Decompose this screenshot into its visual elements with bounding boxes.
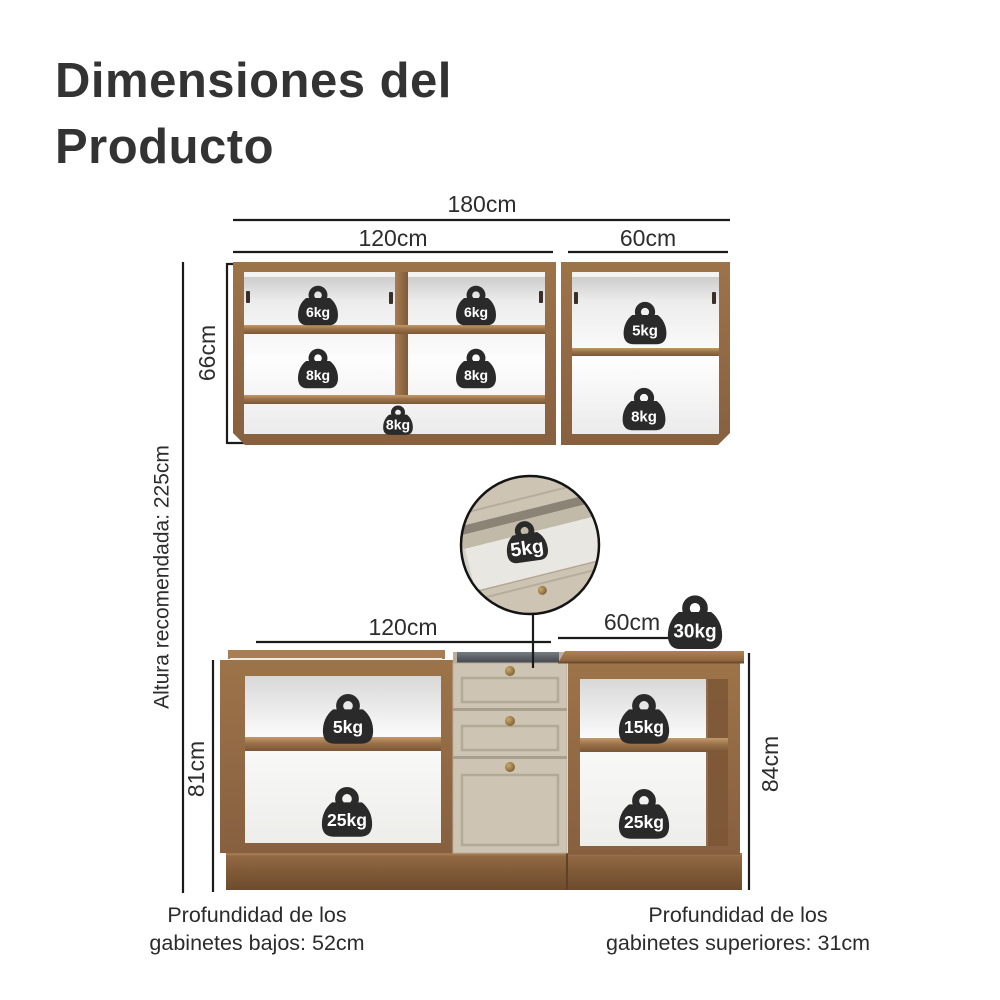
drawer-1-knob bbox=[505, 666, 515, 676]
drawer-3-knob bbox=[505, 762, 515, 772]
recommended-height-label: Altura recomendada: 225cm bbox=[150, 445, 173, 709]
countertop bbox=[558, 651, 744, 663]
plinth-seam bbox=[566, 853, 568, 890]
page-title: Dimensiones del Producto bbox=[55, 54, 452, 174]
upper-right-unit-top-highlight bbox=[572, 272, 719, 277]
upper-right-unit-shelf bbox=[572, 348, 719, 356]
weight-badge-label: 15kg bbox=[624, 717, 664, 737]
weight-badge-label: 8kg bbox=[386, 417, 410, 433]
hinge-icon bbox=[389, 292, 393, 304]
upper-depth-note-line2: gabinetes superiores: 31cm bbox=[606, 931, 870, 955]
weight-badge-label: 5kg bbox=[333, 717, 363, 737]
lower-dimension-lines: 120cm 60cm bbox=[256, 609, 705, 642]
drawer-seam-2 bbox=[453, 756, 567, 759]
depth-notes: Profundidad de los gabinetes bajos: 52cm… bbox=[149, 903, 870, 955]
drawer-detail-inset: 5kg bbox=[426, 434, 632, 668]
product-dimensions-infographic: Dimensiones del Producto 180cm 120cm 60c… bbox=[0, 0, 1000, 1000]
title-line-1: Dimensiones del bbox=[55, 54, 452, 108]
hinge-icon bbox=[539, 291, 543, 303]
lower-left-unit-back-rail bbox=[228, 650, 445, 659]
hinge-icon bbox=[712, 292, 716, 304]
plinth bbox=[226, 853, 742, 890]
weight-badge-label: 6kg bbox=[464, 304, 488, 320]
weight-badge-label: 25kg bbox=[624, 812, 664, 832]
upper-height-label: 66cm bbox=[194, 325, 220, 381]
weight-badge-countertop: 30kg bbox=[668, 599, 722, 649]
drawer-unit-top-rail-left bbox=[453, 652, 457, 664]
upper-total-width-label: 180cm bbox=[447, 191, 516, 217]
countertop-front-edge bbox=[558, 662, 744, 664]
upper-left-width-label: 120cm bbox=[358, 225, 427, 251]
weight-badge-label: 30kg bbox=[673, 622, 716, 643]
upper-left-unit-shelf-1 bbox=[244, 325, 545, 334]
lower-right-unit-side-shadow bbox=[706, 679, 728, 846]
drawer-2-knob bbox=[505, 716, 515, 726]
weight-badge-label: 5kg bbox=[509, 535, 545, 561]
recommended-height-dimension: Altura recomendada: 225cm bbox=[150, 262, 183, 893]
lower-right-width-label: 60cm bbox=[604, 609, 660, 635]
diagram-canvas: Dimensiones del Producto 180cm 120cm 60c… bbox=[0, 0, 1000, 1000]
inset-drawer-illustration: 5kg bbox=[426, 434, 632, 641]
weight-badge-label: 6kg bbox=[306, 304, 330, 320]
upper-depth-note-line1: Profundidad de los bbox=[648, 903, 827, 927]
weight-badge-label: 25kg bbox=[327, 810, 367, 830]
weight-badge-label: 8kg bbox=[631, 408, 657, 425]
lower-right-height-label: 84cm bbox=[757, 736, 783, 792]
hinge-icon bbox=[574, 292, 578, 304]
drawer-unit-open-top bbox=[456, 652, 561, 664]
lower-depth-note-line2: gabinetes bajos: 52cm bbox=[149, 931, 364, 955]
weight-badge-label: 5kg bbox=[632, 322, 658, 339]
hinge-icon bbox=[246, 291, 250, 303]
upper-cabinet: 6kg 6kg 8kg 8kg 8kg 5kg 8kg bbox=[233, 262, 730, 445]
lower-left-height-label: 81cm bbox=[183, 741, 209, 797]
weight-badge-label: 8kg bbox=[464, 367, 488, 383]
upper-left-unit-top-highlight bbox=[244, 272, 545, 277]
drawer-seam-1 bbox=[453, 708, 567, 711]
lower-left-width-label: 120cm bbox=[368, 614, 437, 640]
title-line-2: Producto bbox=[55, 120, 274, 174]
lower-depth-note-line1: Profundidad de los bbox=[167, 903, 346, 927]
weight-badge-label: 8kg bbox=[306, 367, 330, 383]
upper-left-unit-shelf-2 bbox=[244, 395, 545, 404]
upper-right-width-label: 60cm bbox=[620, 225, 676, 251]
